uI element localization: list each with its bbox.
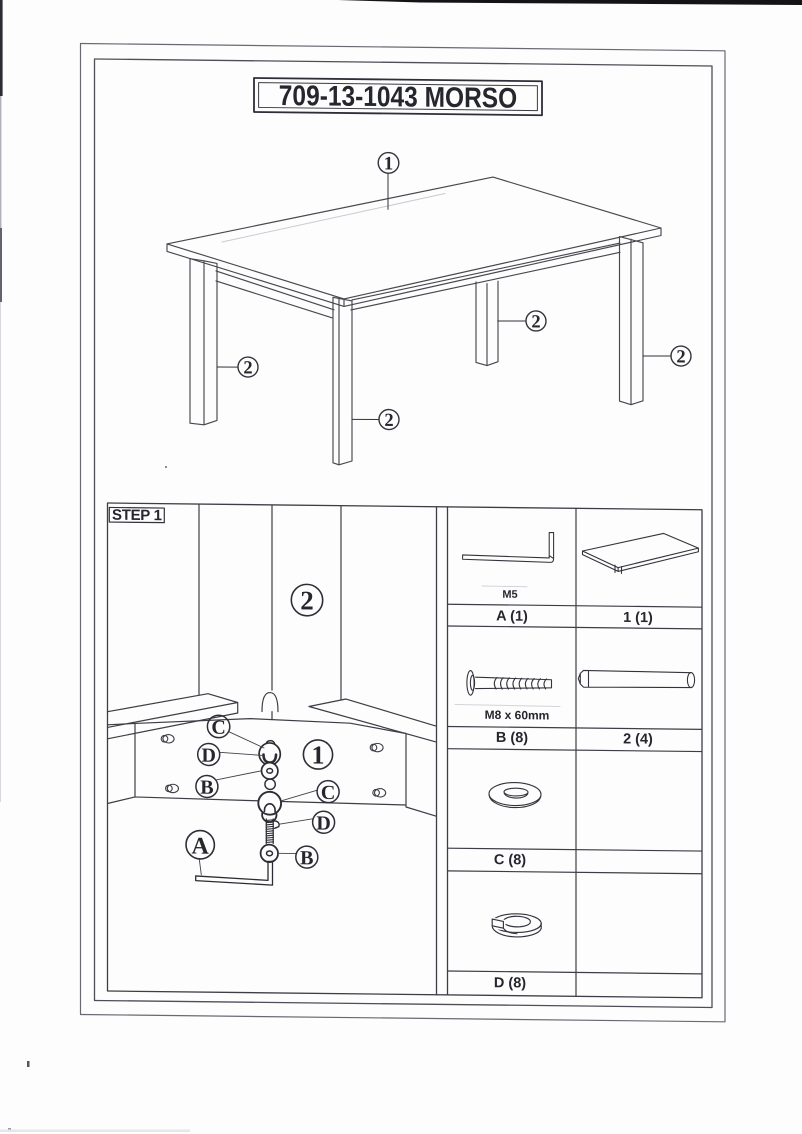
svg-text:M5: M5 bbox=[502, 589, 517, 601]
svg-text:B (8): B (8) bbox=[496, 730, 528, 746]
svg-text:2 (4): 2 (4) bbox=[623, 731, 653, 747]
svg-text:2: 2 bbox=[300, 585, 313, 615]
svg-text:1: 1 bbox=[312, 741, 325, 770]
svg-text:2: 2 bbox=[676, 347, 685, 367]
svg-text:STEP 1: STEP 1 bbox=[112, 507, 162, 525]
svg-text:A: A bbox=[192, 833, 210, 859]
svg-text:A (1): A (1) bbox=[496, 608, 528, 624]
svg-text:C: C bbox=[321, 782, 335, 804]
svg-text:C (8): C (8) bbox=[494, 852, 526, 868]
svg-text:1: 1 bbox=[384, 153, 393, 174]
svg-text:1 (1): 1 (1) bbox=[623, 610, 653, 626]
svg-text:D: D bbox=[316, 812, 330, 834]
svg-text:M8 x 60mm: M8 x 60mm bbox=[485, 708, 550, 723]
svg-text:D: D bbox=[201, 745, 215, 767]
svg-text:2: 2 bbox=[384, 411, 393, 431]
svg-text:B: B bbox=[300, 847, 313, 869]
svg-text:2: 2 bbox=[531, 312, 540, 332]
svg-text:D (8): D (8) bbox=[494, 975, 526, 991]
svg-text:2: 2 bbox=[243, 358, 252, 378]
svg-text:C: C bbox=[211, 717, 225, 739]
svg-text:B: B bbox=[200, 777, 213, 799]
svg-text:709-13-1043 MORSO: 709-13-1043 MORSO bbox=[279, 79, 517, 114]
